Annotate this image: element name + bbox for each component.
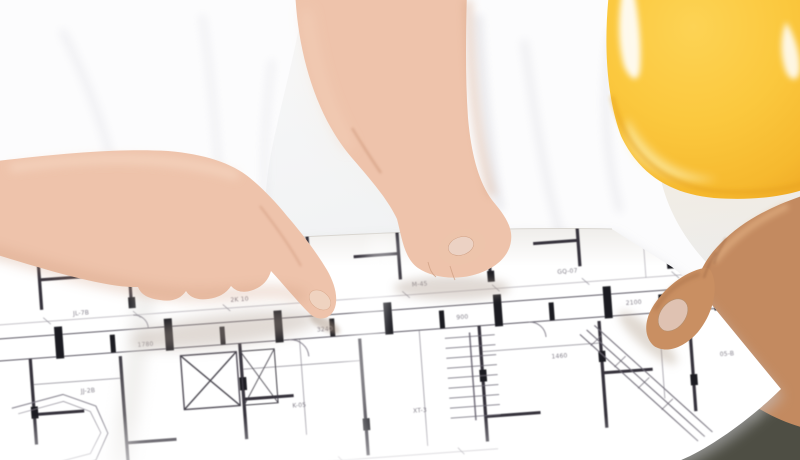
plan-label: K-05: [292, 402, 306, 410]
plan-label: JJ-2B: [80, 387, 96, 395]
plan-label: GQ-07: [557, 267, 578, 275]
resting-hand-shadow: [394, 276, 510, 300]
plan-label: 2100: [626, 299, 643, 307]
photo-svg: Two people reviewing an architectural fl…: [0, 0, 800, 460]
photo-scene: Two people reviewing an architectural fl…: [0, 0, 800, 460]
plan-label: 900: [456, 314, 469, 322]
plan-label: 1460: [551, 352, 568, 360]
plan-label: XT-3: [413, 407, 427, 415]
plan-label: JL-7B: [72, 309, 90, 317]
plan-label: 05-B: [720, 350, 735, 358]
paper-bottom-blur-fade: [0, 415, 800, 460]
